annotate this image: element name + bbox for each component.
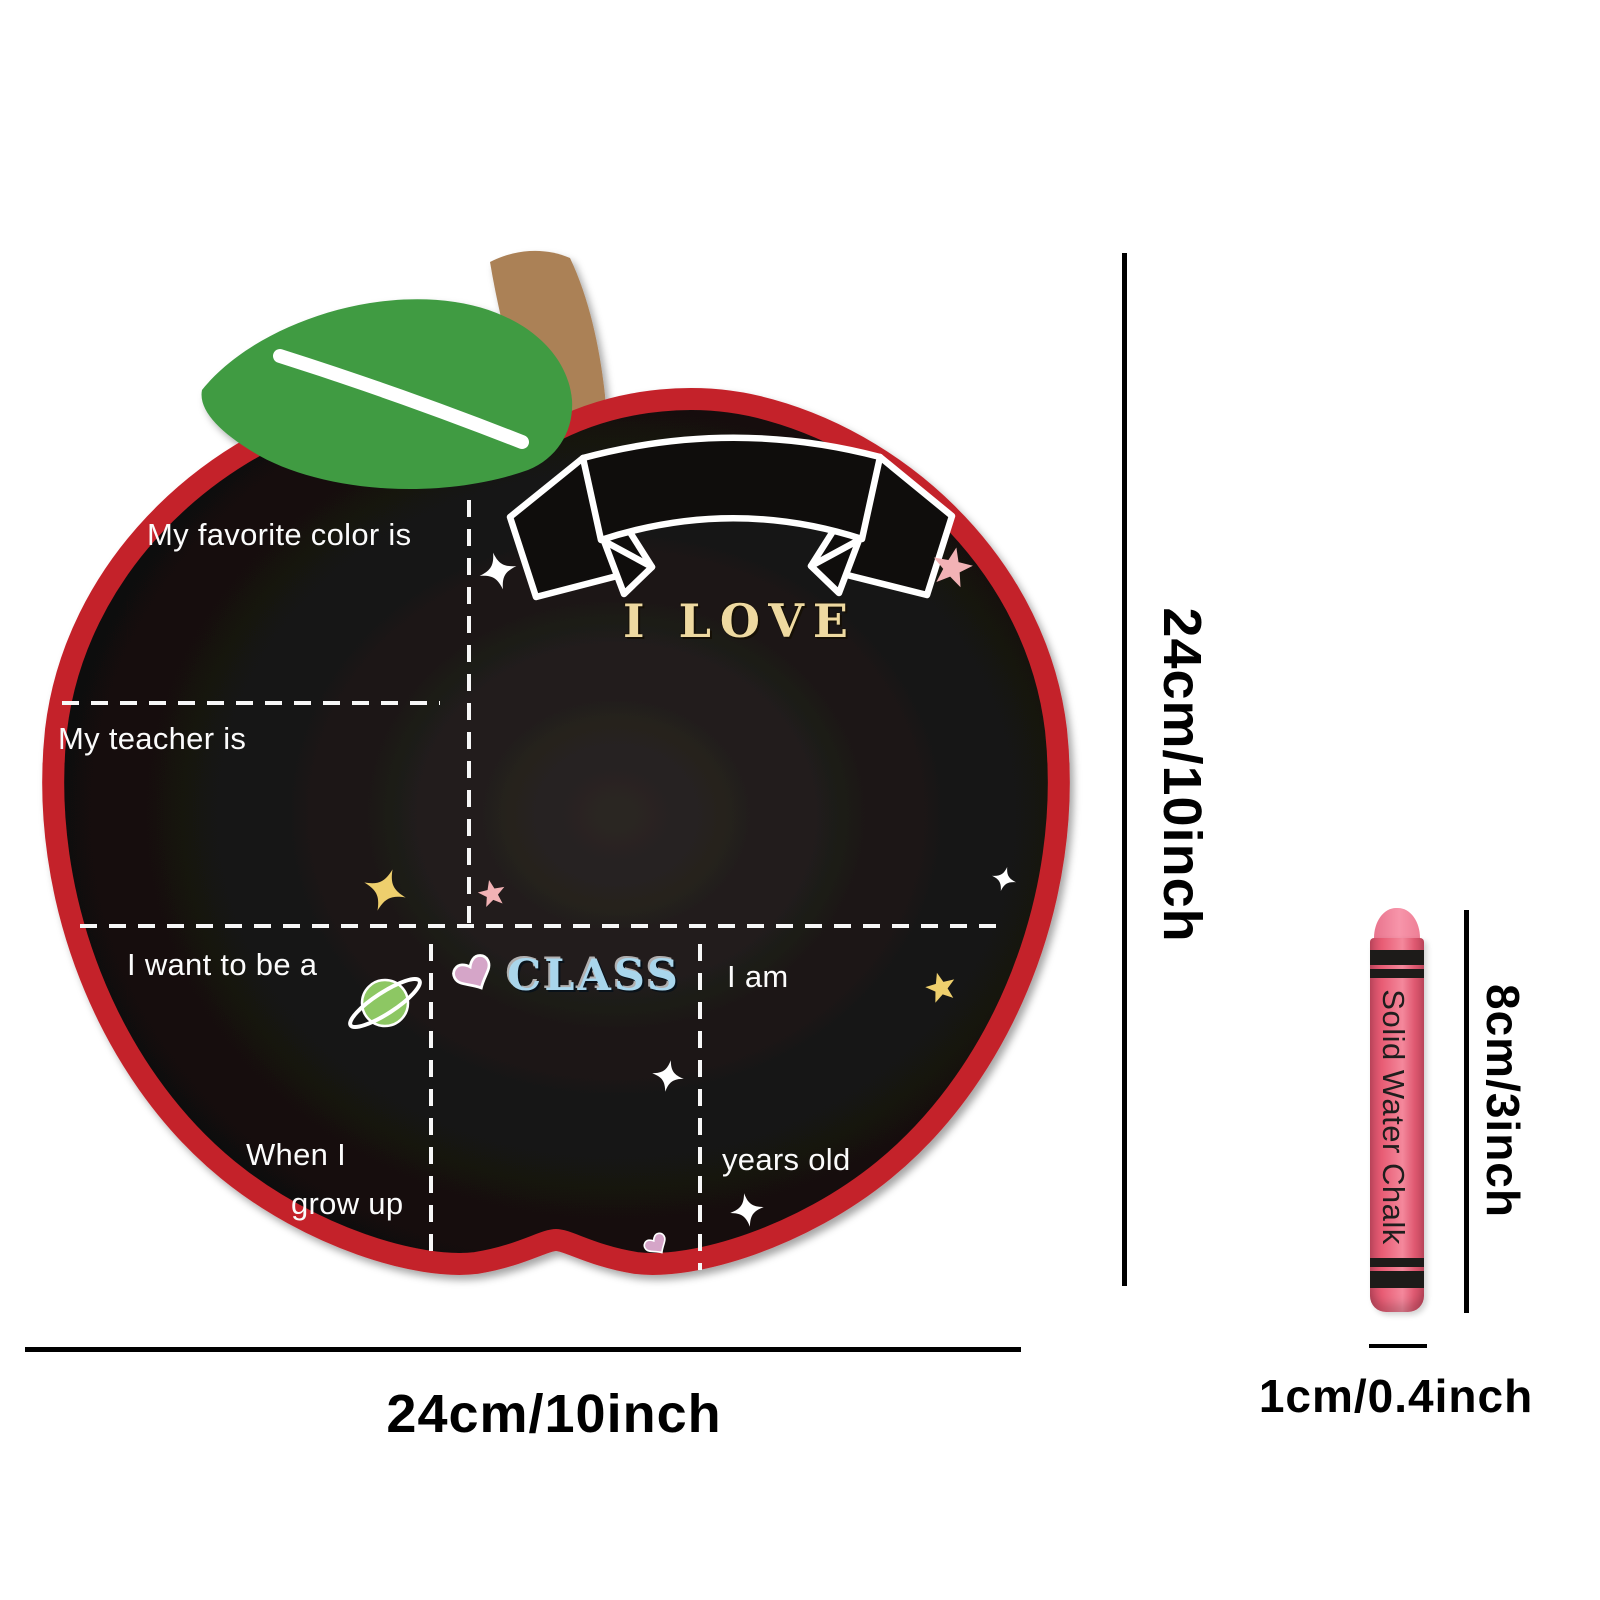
field-label-want-to-be: I want to be a — [127, 948, 317, 982]
field-label-favorite-color: My favorite color is — [147, 518, 411, 552]
field-label-teacher: My teacher is — [58, 722, 246, 756]
field-label-years-old: years old — [722, 1143, 851, 1177]
chalk-height-dimension-label: 8cm/3inch — [1476, 984, 1530, 1218]
crayon-brand-text: Solid Water Chalk — [1375, 989, 1411, 1244]
board-width-dimension-label: 24cm/10inch — [386, 1383, 721, 1445]
field-label-i-am: I am — [727, 960, 789, 994]
crayon-band — [1370, 1271, 1424, 1288]
crayon-band — [1370, 1258, 1424, 1267]
board-width-dimension-line — [25, 1347, 1021, 1352]
class-text: CLASS — [507, 951, 681, 1001]
chalk-height-dimension-line — [1464, 910, 1469, 1313]
product-dimension-infographic: My favorite color is My teacher is I wan… — [0, 0, 1600, 1600]
crayon-band — [1370, 969, 1424, 978]
apple-chalkboard-graphic — [0, 0, 1600, 1600]
chalk-width-dimension-line — [1369, 1344, 1427, 1348]
board-height-dimension-label: 24cm/10inch — [1151, 607, 1213, 942]
banner-text-i-love: I LOVE — [623, 594, 857, 648]
crayon-band — [1370, 950, 1424, 965]
apple-with-stem-and-leaf — [53, 251, 1059, 1264]
chalk-width-dimension-label: 1cm/0.4inch — [1259, 1369, 1533, 1423]
field-label-when-i: When I — [246, 1138, 346, 1172]
board-height-dimension-line — [1122, 253, 1127, 1286]
field-label-grow-up: grow up — [291, 1187, 403, 1221]
